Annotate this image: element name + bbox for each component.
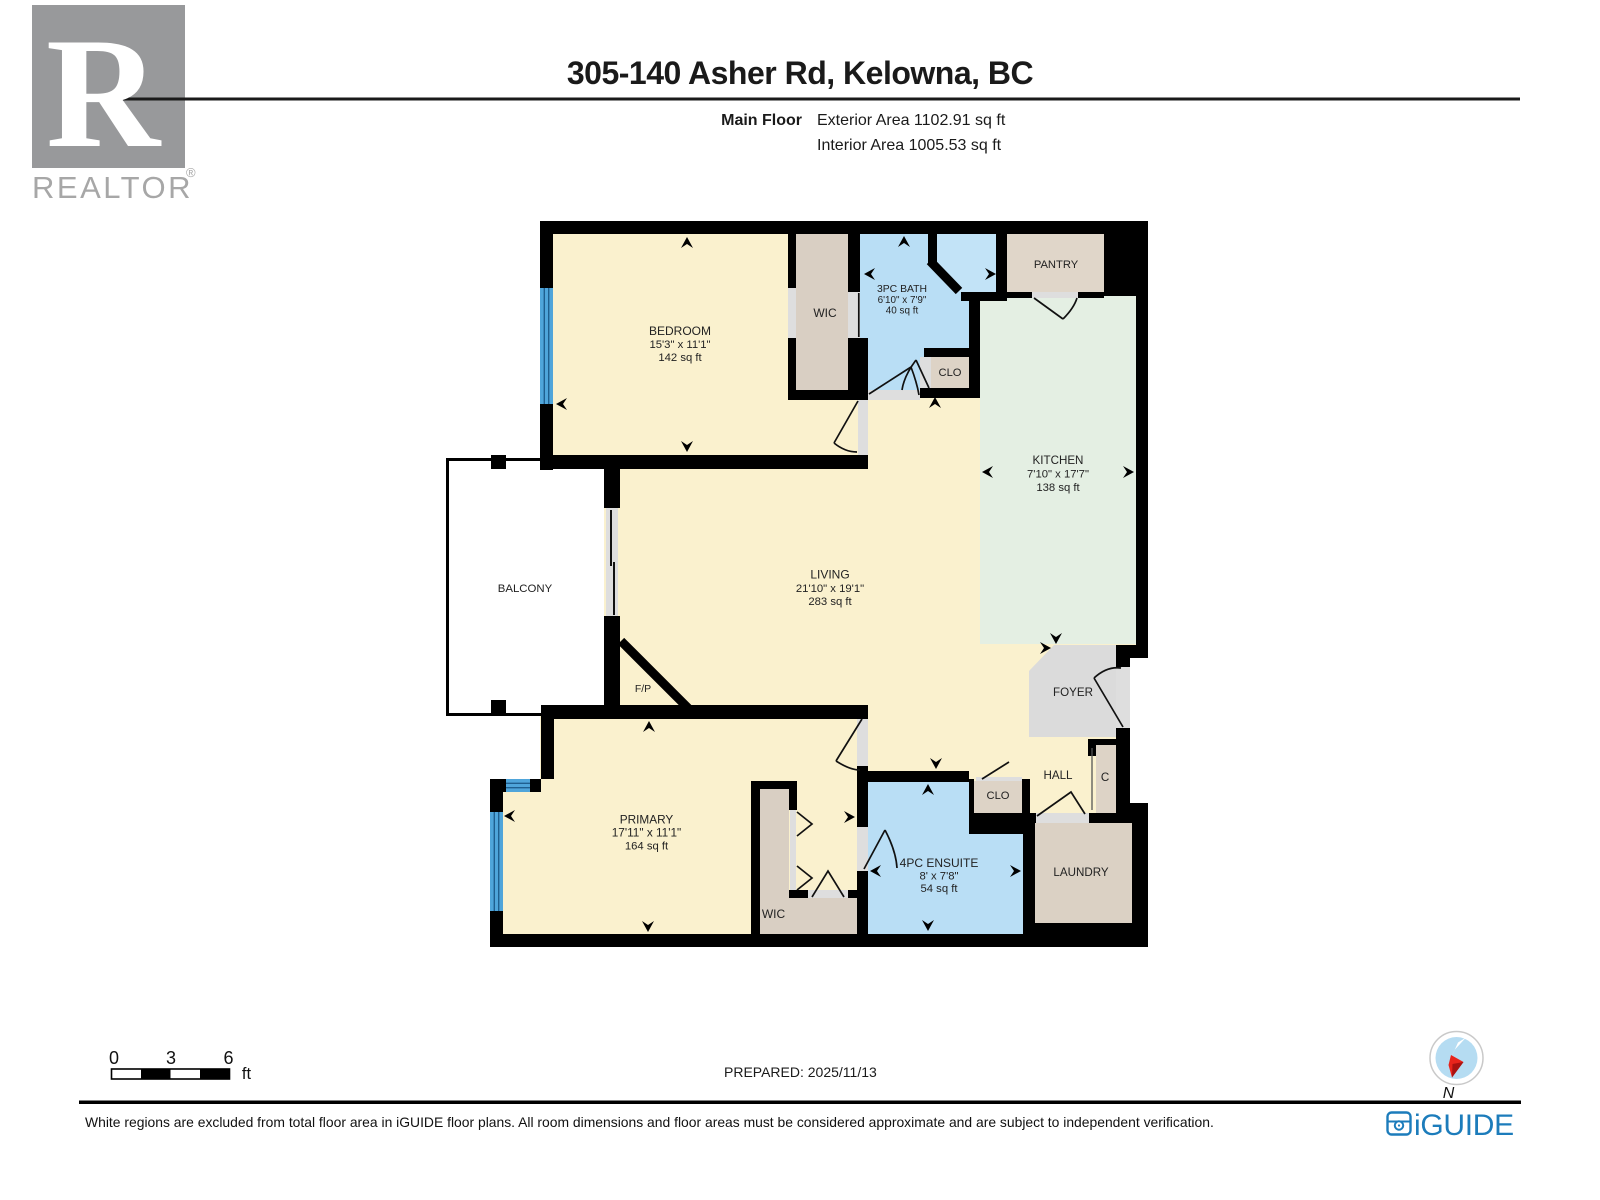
svg-text:N: N: [1443, 1085, 1455, 1102]
svg-text:0: 0: [109, 1048, 119, 1068]
svg-text:PANTRY: PANTRY: [1034, 259, 1079, 271]
svg-text:305-140 Asher Rd, Kelowna, BC: 305-140 Asher Rd, Kelowna, BC: [567, 55, 1034, 91]
svg-text:ft: ft: [242, 1065, 252, 1083]
svg-text:Exterior Area 1102.91 sq ft: Exterior Area 1102.91 sq ft: [817, 112, 1006, 129]
svg-text:CLO: CLO: [986, 790, 1009, 802]
svg-text:F/P: F/P: [635, 683, 651, 695]
svg-text:Main Floor: Main Floor: [721, 112, 802, 129]
svg-text:6: 6: [223, 1048, 233, 1068]
svg-text:40 sq ft: 40 sq ft: [886, 306, 919, 317]
svg-text:21'10" x 19'1": 21'10" x 19'1": [796, 583, 864, 595]
svg-text:iGUIDE: iGUIDE: [1414, 1109, 1514, 1142]
svg-text:HALL: HALL: [1043, 769, 1073, 782]
svg-text:15'3" x 11'1": 15'3" x 11'1": [649, 339, 710, 351]
svg-text:54 sq ft: 54 sq ft: [920, 883, 958, 895]
svg-text:17'11" x 11'1": 17'11" x 11'1": [612, 826, 682, 840]
svg-text:®: ®: [186, 165, 196, 180]
svg-text:164 sq ft: 164 sq ft: [625, 841, 669, 853]
svg-text:LAUNDRY: LAUNDRY: [1053, 866, 1108, 879]
svg-text:WIC: WIC: [813, 306, 837, 320]
svg-text:REALTOR: REALTOR: [32, 170, 193, 205]
svg-text:283 sq ft: 283 sq ft: [808, 596, 852, 608]
svg-text:Interior Area 1005.53 sq ft: Interior Area 1005.53 sq ft: [817, 137, 1002, 154]
svg-text:PRIMARY: PRIMARY: [620, 813, 674, 827]
svg-text:C: C: [1101, 771, 1109, 784]
svg-text:PREPARED: 2025/11/13: PREPARED: 2025/11/13: [724, 1064, 877, 1080]
svg-text:7'10" x 17'7": 7'10" x 17'7": [1027, 469, 1089, 481]
svg-text:WIC: WIC: [762, 907, 786, 921]
svg-text:White regions are excluded fro: White regions are excluded from total fl…: [85, 1114, 1214, 1130]
svg-text:BALCONY: BALCONY: [498, 583, 553, 595]
svg-text:3: 3: [166, 1048, 176, 1068]
svg-text:CLO: CLO: [938, 367, 961, 379]
svg-text:8' x 7'8": 8' x 7'8": [919, 871, 958, 883]
svg-text:BEDROOM: BEDROOM: [649, 324, 711, 338]
svg-text:138 sq ft: 138 sq ft: [1036, 482, 1080, 494]
svg-text:R: R: [46, 6, 162, 181]
svg-text:3PC BATH: 3PC BATH: [877, 284, 927, 295]
svg-text:LIVING: LIVING: [810, 568, 849, 582]
svg-text:KITCHEN: KITCHEN: [1033, 454, 1084, 467]
svg-text:142 sq ft: 142 sq ft: [658, 352, 702, 364]
svg-text:FOYER: FOYER: [1053, 686, 1093, 699]
svg-text:4PC ENSUITE: 4PC ENSUITE: [900, 856, 979, 870]
svg-text:6'10" x 7'9": 6'10" x 7'9": [878, 295, 927, 306]
